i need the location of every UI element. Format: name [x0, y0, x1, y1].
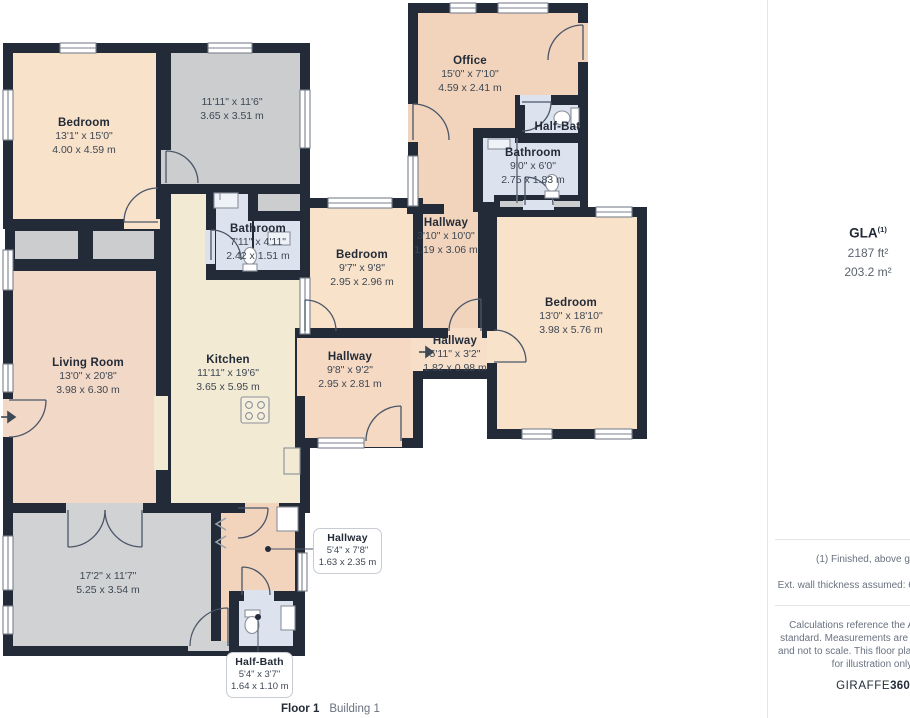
gla-value-ft: 2187 ft² [770, 246, 910, 260]
room-gray-tl-area [166, 48, 305, 189]
closet-a-area [10, 226, 83, 264]
callout-half-bath-bottom: Half-Bath 5'4" x 3'7" 1.64 x 1.10 m [226, 652, 293, 698]
note-finished-above-grade: (1) Finished, above grade [775, 553, 910, 566]
giraffe360-logo: GIRAFFE360 [775, 680, 910, 692]
gla-value-m: 203.2 m² [770, 265, 910, 279]
room-dims-ft: 5'4" x 7'8" [318, 545, 377, 557]
room-gray-bl-area [8, 508, 216, 651]
room-dims-ft: 5'4" x 3'7" [231, 669, 288, 681]
floor-plan-drawing [0, 0, 910, 718]
sidebar-divider [767, 0, 768, 718]
brand-360: 360 [890, 680, 910, 692]
disclaimer-text: Calculations reference the ANSI-Z765 sta… [775, 619, 910, 671]
room-name: Hallway [318, 532, 377, 545]
room-dims-m: 1.63 x 2.35 m [318, 557, 377, 569]
notes-divider-top [775, 539, 910, 540]
sink-icon [268, 232, 290, 245]
note-wall-thickness: Ext. wall thickness assumed: 6 in/15.24 … [775, 579, 910, 592]
floor-label: Floor 1Building 1 [281, 703, 380, 715]
closet-b-area [88, 226, 159, 264]
gla-superscript: (1) [878, 225, 887, 234]
room-bedroom-mid-area [305, 203, 418, 333]
callout-hallway-bottom: Hallway 5'4" x 7'8" 1.63 x 2.35 m [313, 528, 382, 574]
room-living-area [8, 266, 161, 508]
sink-half-bath-icon [281, 606, 295, 630]
notes-divider-mid [775, 605, 910, 606]
sidebar-notes: (1) Finished, above grade Ext. wall thic… [775, 539, 910, 692]
room-bedroom-right-area [492, 212, 642, 434]
room-name: Half-Bath [231, 656, 288, 669]
toilet-top-bath-icon [545, 175, 559, 199]
toilet-icon [243, 248, 257, 272]
shower-head-icon [488, 139, 510, 149]
floor-name: Floor 1 [281, 703, 319, 715]
brand-giraffe: GIRAFFE [836, 680, 890, 692]
room-bedroom-tl-area [8, 48, 161, 224]
building-name: Building 1 [329, 703, 380, 715]
floor-plan-page: Bedroom 13'1" x 15'0" 4.00 x 4.59 m 11'1… [0, 0, 910, 718]
stove-icon [241, 397, 269, 423]
gla-title: GLA(1) [770, 225, 910, 241]
gla-block: GLA(1) 2187 ft² 203.2 m² [770, 225, 910, 279]
closet-nook [277, 507, 298, 531]
room-hallway-mid-area [300, 333, 418, 443]
closet-mid-area [253, 189, 305, 216]
counter-icon [284, 448, 300, 474]
shower-icon [214, 193, 238, 208]
room-dims-m: 1.64 x 1.10 m [231, 681, 288, 693]
gla-label: GLA [849, 226, 878, 241]
